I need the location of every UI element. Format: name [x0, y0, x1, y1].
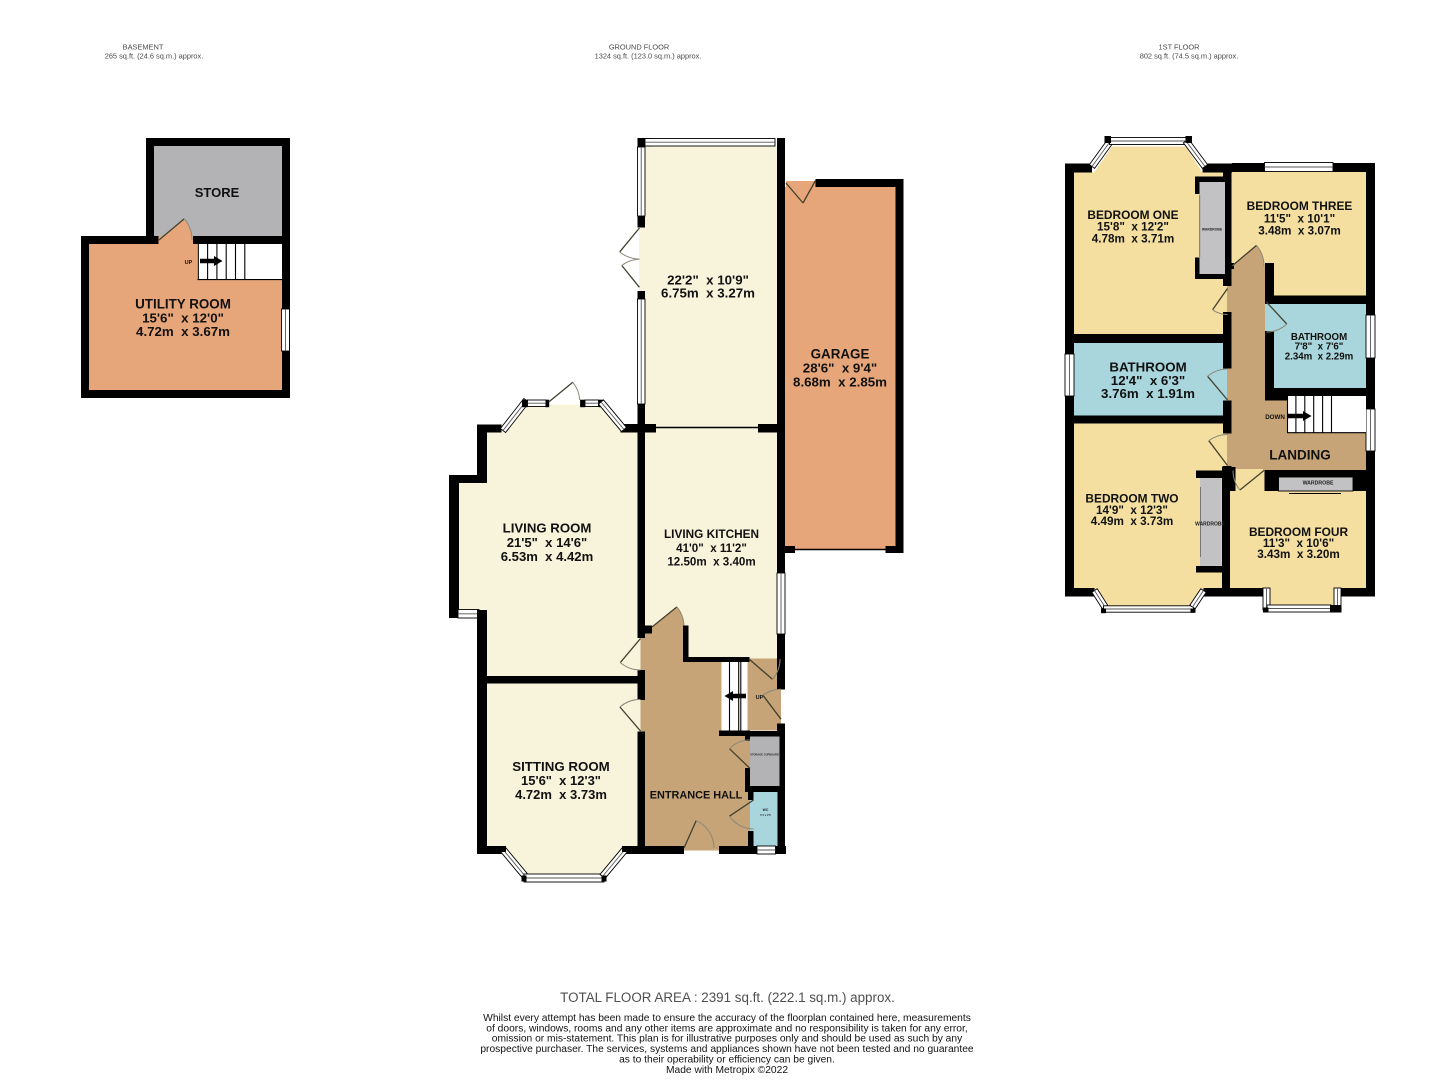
svg-text:4.72m x 3.67m: 4.72m x 3.67m	[136, 324, 230, 339]
svg-text:6.75m x 3.27m: 6.75m x 3.27m	[661, 286, 755, 301]
svg-text:4.49m x 3.73m: 4.49m x 3.73m	[1091, 515, 1174, 528]
svg-text:3.76m x 1.91m: 3.76m x 1.91m	[1101, 386, 1195, 401]
svg-text:SITTING ROOM: SITTING ROOM	[512, 759, 610, 774]
svg-text:8.68m x 2.85m: 8.68m x 2.85m	[793, 375, 887, 390]
svg-text:STORAGE CUPBOARD: STORAGE CUPBOARD	[750, 753, 779, 757]
svg-text:3.48m x 3.07m: 3.48m x 3.07m	[1258, 225, 1341, 238]
svg-text:WC: WC	[763, 808, 769, 812]
svg-text:3.43m x 3.20m: 3.43m x 3.20m	[1257, 548, 1340, 561]
svg-text:LIVING ROOM: LIVING ROOM	[503, 521, 592, 536]
svg-text:UP: UP	[756, 695, 764, 701]
svg-text:of doors, windows, rooms and a: of doors, windows, rooms and any other i…	[486, 1023, 967, 1034]
svg-text:4.72m x 3.73m: 4.72m x 3.73m	[515, 787, 607, 802]
svg-text:802 sq.ft. (74.5 sq.m.) approx: 802 sq.ft. (74.5 sq.m.) approx.	[1140, 52, 1239, 61]
svg-text:LIVING KITCHEN: LIVING KITCHEN	[664, 527, 759, 541]
svg-text:UP: UP	[185, 260, 193, 266]
svg-text:15'6" x 12'3": 15'6" x 12'3"	[521, 773, 601, 788]
svg-text:DOWN: DOWN	[1265, 414, 1285, 421]
svg-text:4.78m x 3.71m: 4.78m x 3.71m	[1092, 232, 1175, 245]
svg-text:GARAGE: GARAGE	[811, 346, 870, 361]
svg-text:TOTAL FLOOR AREA : 2391 sq.ft.: TOTAL FLOOR AREA : 2391 sq.ft. (222.1 sq…	[560, 990, 895, 1005]
svg-text:2.34m x 2.29m: 2.34m x 2.29m	[1285, 351, 1354, 362]
svg-text:BEDROOM THREE: BEDROOM THREE	[1247, 199, 1353, 213]
svg-text:WARDROBE: WARDROBE	[1303, 480, 1334, 486]
svg-text:as to their operability or eff: as to their operability or efficiency ca…	[619, 1054, 835, 1065]
svg-text:15'6" x 12'0": 15'6" x 12'0"	[142, 310, 224, 325]
svg-text:5'1 x 2'6: 5'1 x 2'6	[760, 813, 771, 817]
svg-text:12.50m x 3.40m: 12.50m x 3.40m	[667, 555, 755, 568]
svg-text:prospective purchaser. The ser: prospective purchaser. The services, sys…	[480, 1044, 974, 1055]
svg-text:LANDING: LANDING	[1269, 448, 1331, 463]
svg-text:Made with Metropix ©2022: Made with Metropix ©2022	[666, 1065, 788, 1076]
svg-text:6.53m x 4.42m: 6.53m x 4.42m	[501, 549, 593, 564]
svg-text:WARDROBE: WARDROBE	[1195, 522, 1225, 528]
svg-text:1ST FLOOR: 1ST FLOOR	[1159, 43, 1200, 52]
svg-text:BATHROOM: BATHROOM	[1109, 359, 1186, 374]
svg-text:UTILITY ROOM: UTILITY ROOM	[135, 296, 231, 311]
svg-text:265 sq.ft. (24.6 sq.m.) approx: 265 sq.ft. (24.6 sq.m.) approx.	[105, 52, 204, 61]
svg-text:11'5" x 10'1": 11'5" x 10'1"	[1264, 212, 1335, 225]
svg-text:21'5" x 14'6": 21'5" x 14'6"	[507, 535, 588, 550]
svg-text:BASEMENT: BASEMENT	[123, 43, 164, 52]
svg-text:ENTRANCE HALL: ENTRANCE HALL	[650, 789, 743, 801]
svg-text:1324 sq.ft. (123.0 sq.m.) appr: 1324 sq.ft. (123.0 sq.m.) approx.	[595, 52, 702, 61]
svg-text:WARDROBE: WARDROBE	[1202, 228, 1223, 232]
svg-text:28'6" x 9'4": 28'6" x 9'4"	[803, 361, 877, 376]
svg-text:41'0" x 11'2": 41'0" x 11'2"	[676, 542, 747, 555]
svg-text:GROUND FLOOR: GROUND FLOOR	[609, 43, 669, 52]
svg-text:STORE: STORE	[195, 185, 240, 200]
